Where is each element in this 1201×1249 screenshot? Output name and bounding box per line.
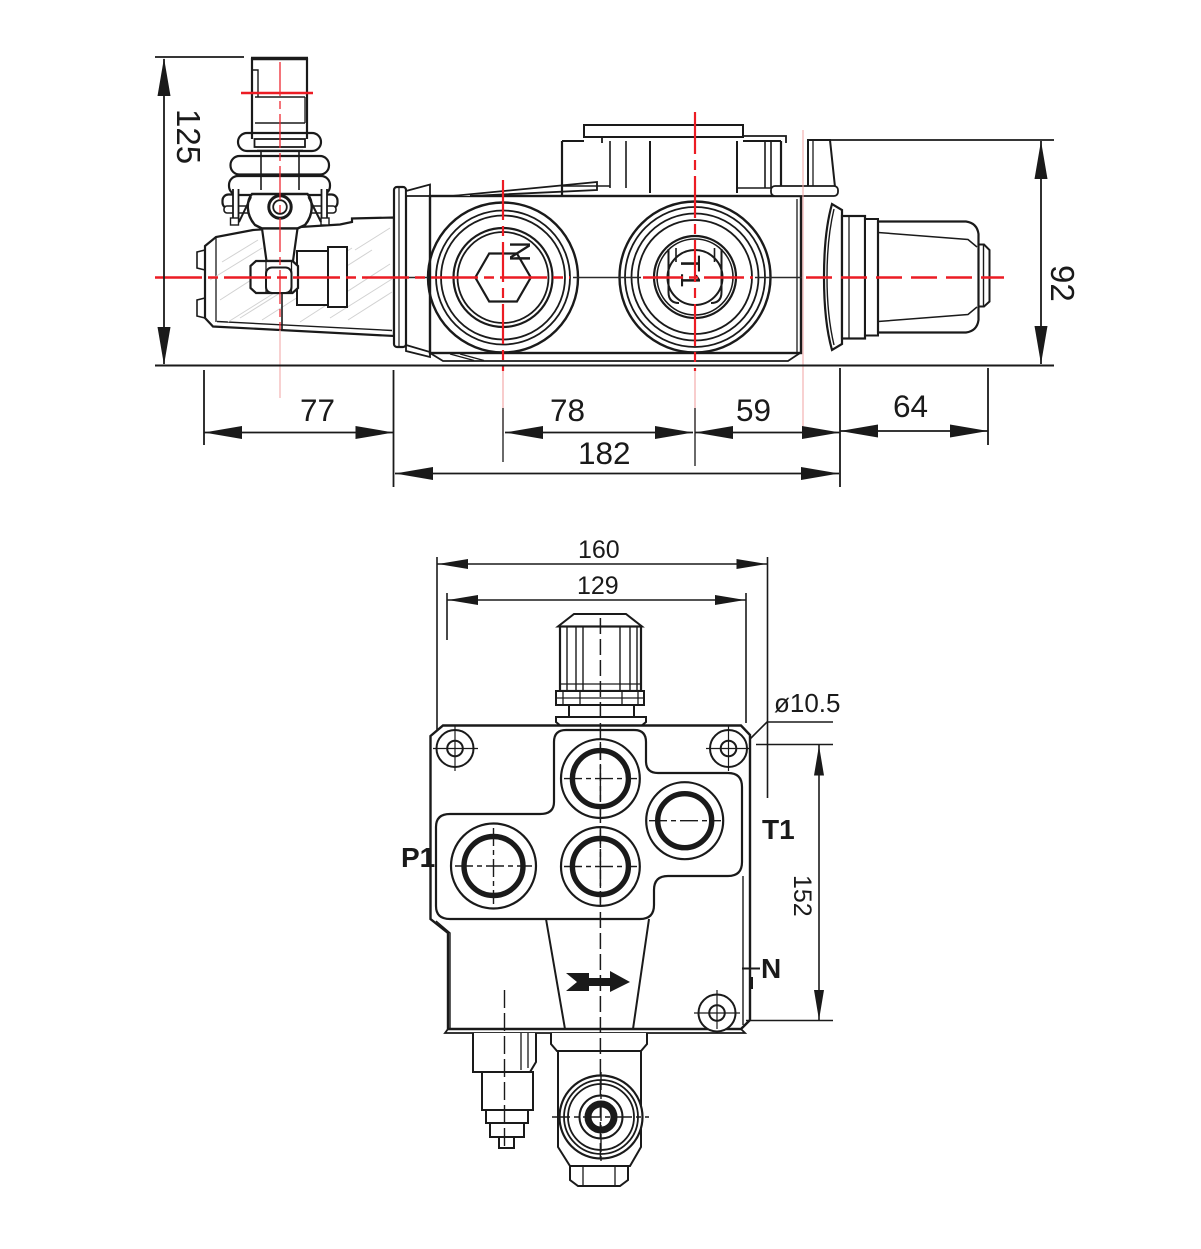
svg-text:182: 182 xyxy=(578,435,631,471)
svg-text:78: 78 xyxy=(550,392,585,428)
svg-text:77: 77 xyxy=(300,392,335,428)
svg-text:125: 125 xyxy=(170,109,207,164)
svg-text:64: 64 xyxy=(893,388,928,424)
svg-text:59: 59 xyxy=(736,392,771,428)
svg-text:N: N xyxy=(761,953,781,984)
svg-text:160: 160 xyxy=(578,536,620,564)
svg-text:P1: P1 xyxy=(401,842,435,873)
svg-text:129: 129 xyxy=(577,572,619,600)
svg-text:N: N xyxy=(503,241,535,262)
svg-text:T1: T1 xyxy=(762,814,795,845)
svg-text:ø10.5: ø10.5 xyxy=(774,688,841,718)
svg-text:92: 92 xyxy=(1044,265,1081,302)
svg-text:152: 152 xyxy=(788,875,816,917)
svg-text:T1: T1 xyxy=(675,255,706,288)
